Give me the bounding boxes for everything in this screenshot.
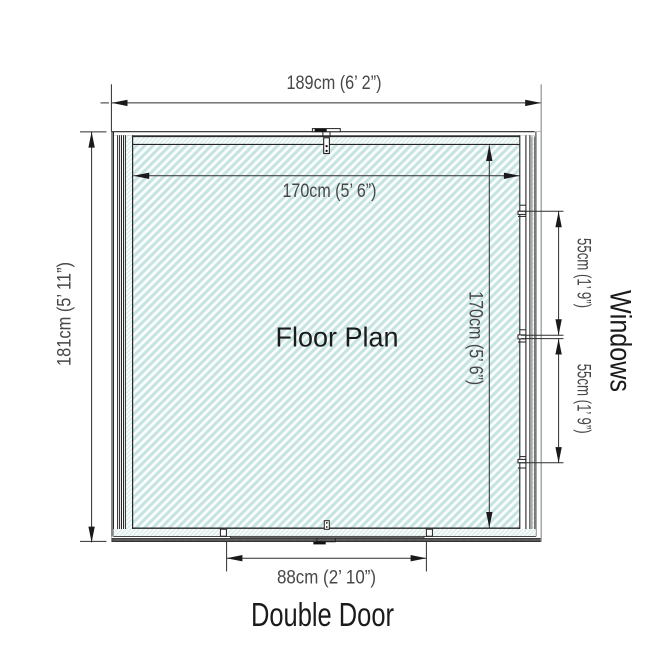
svg-text:189cm (6’ 2”): 189cm (6’ 2”) <box>287 73 382 94</box>
svg-text:Double Door: Double Door <box>251 596 394 633</box>
svg-text:170cm (5’ 6”): 170cm (5’ 6”) <box>465 291 486 385</box>
svg-text:Floor Plan: Floor Plan <box>276 322 399 353</box>
svg-text:88cm (2’ 10”): 88cm (2’ 10”) <box>277 567 376 588</box>
svg-text:181cm (5’ 11”): 181cm (5’ 11”) <box>55 262 76 366</box>
svg-text:Windows: Windows <box>604 290 637 392</box>
svg-text:55cm (1’ 9”): 55cm (1’ 9”) <box>573 238 594 308</box>
svg-text:55cm (1’ 9”): 55cm (1’ 9”) <box>573 364 594 434</box>
svg-text:170cm (5’ 6”): 170cm (5’ 6”) <box>283 181 377 202</box>
